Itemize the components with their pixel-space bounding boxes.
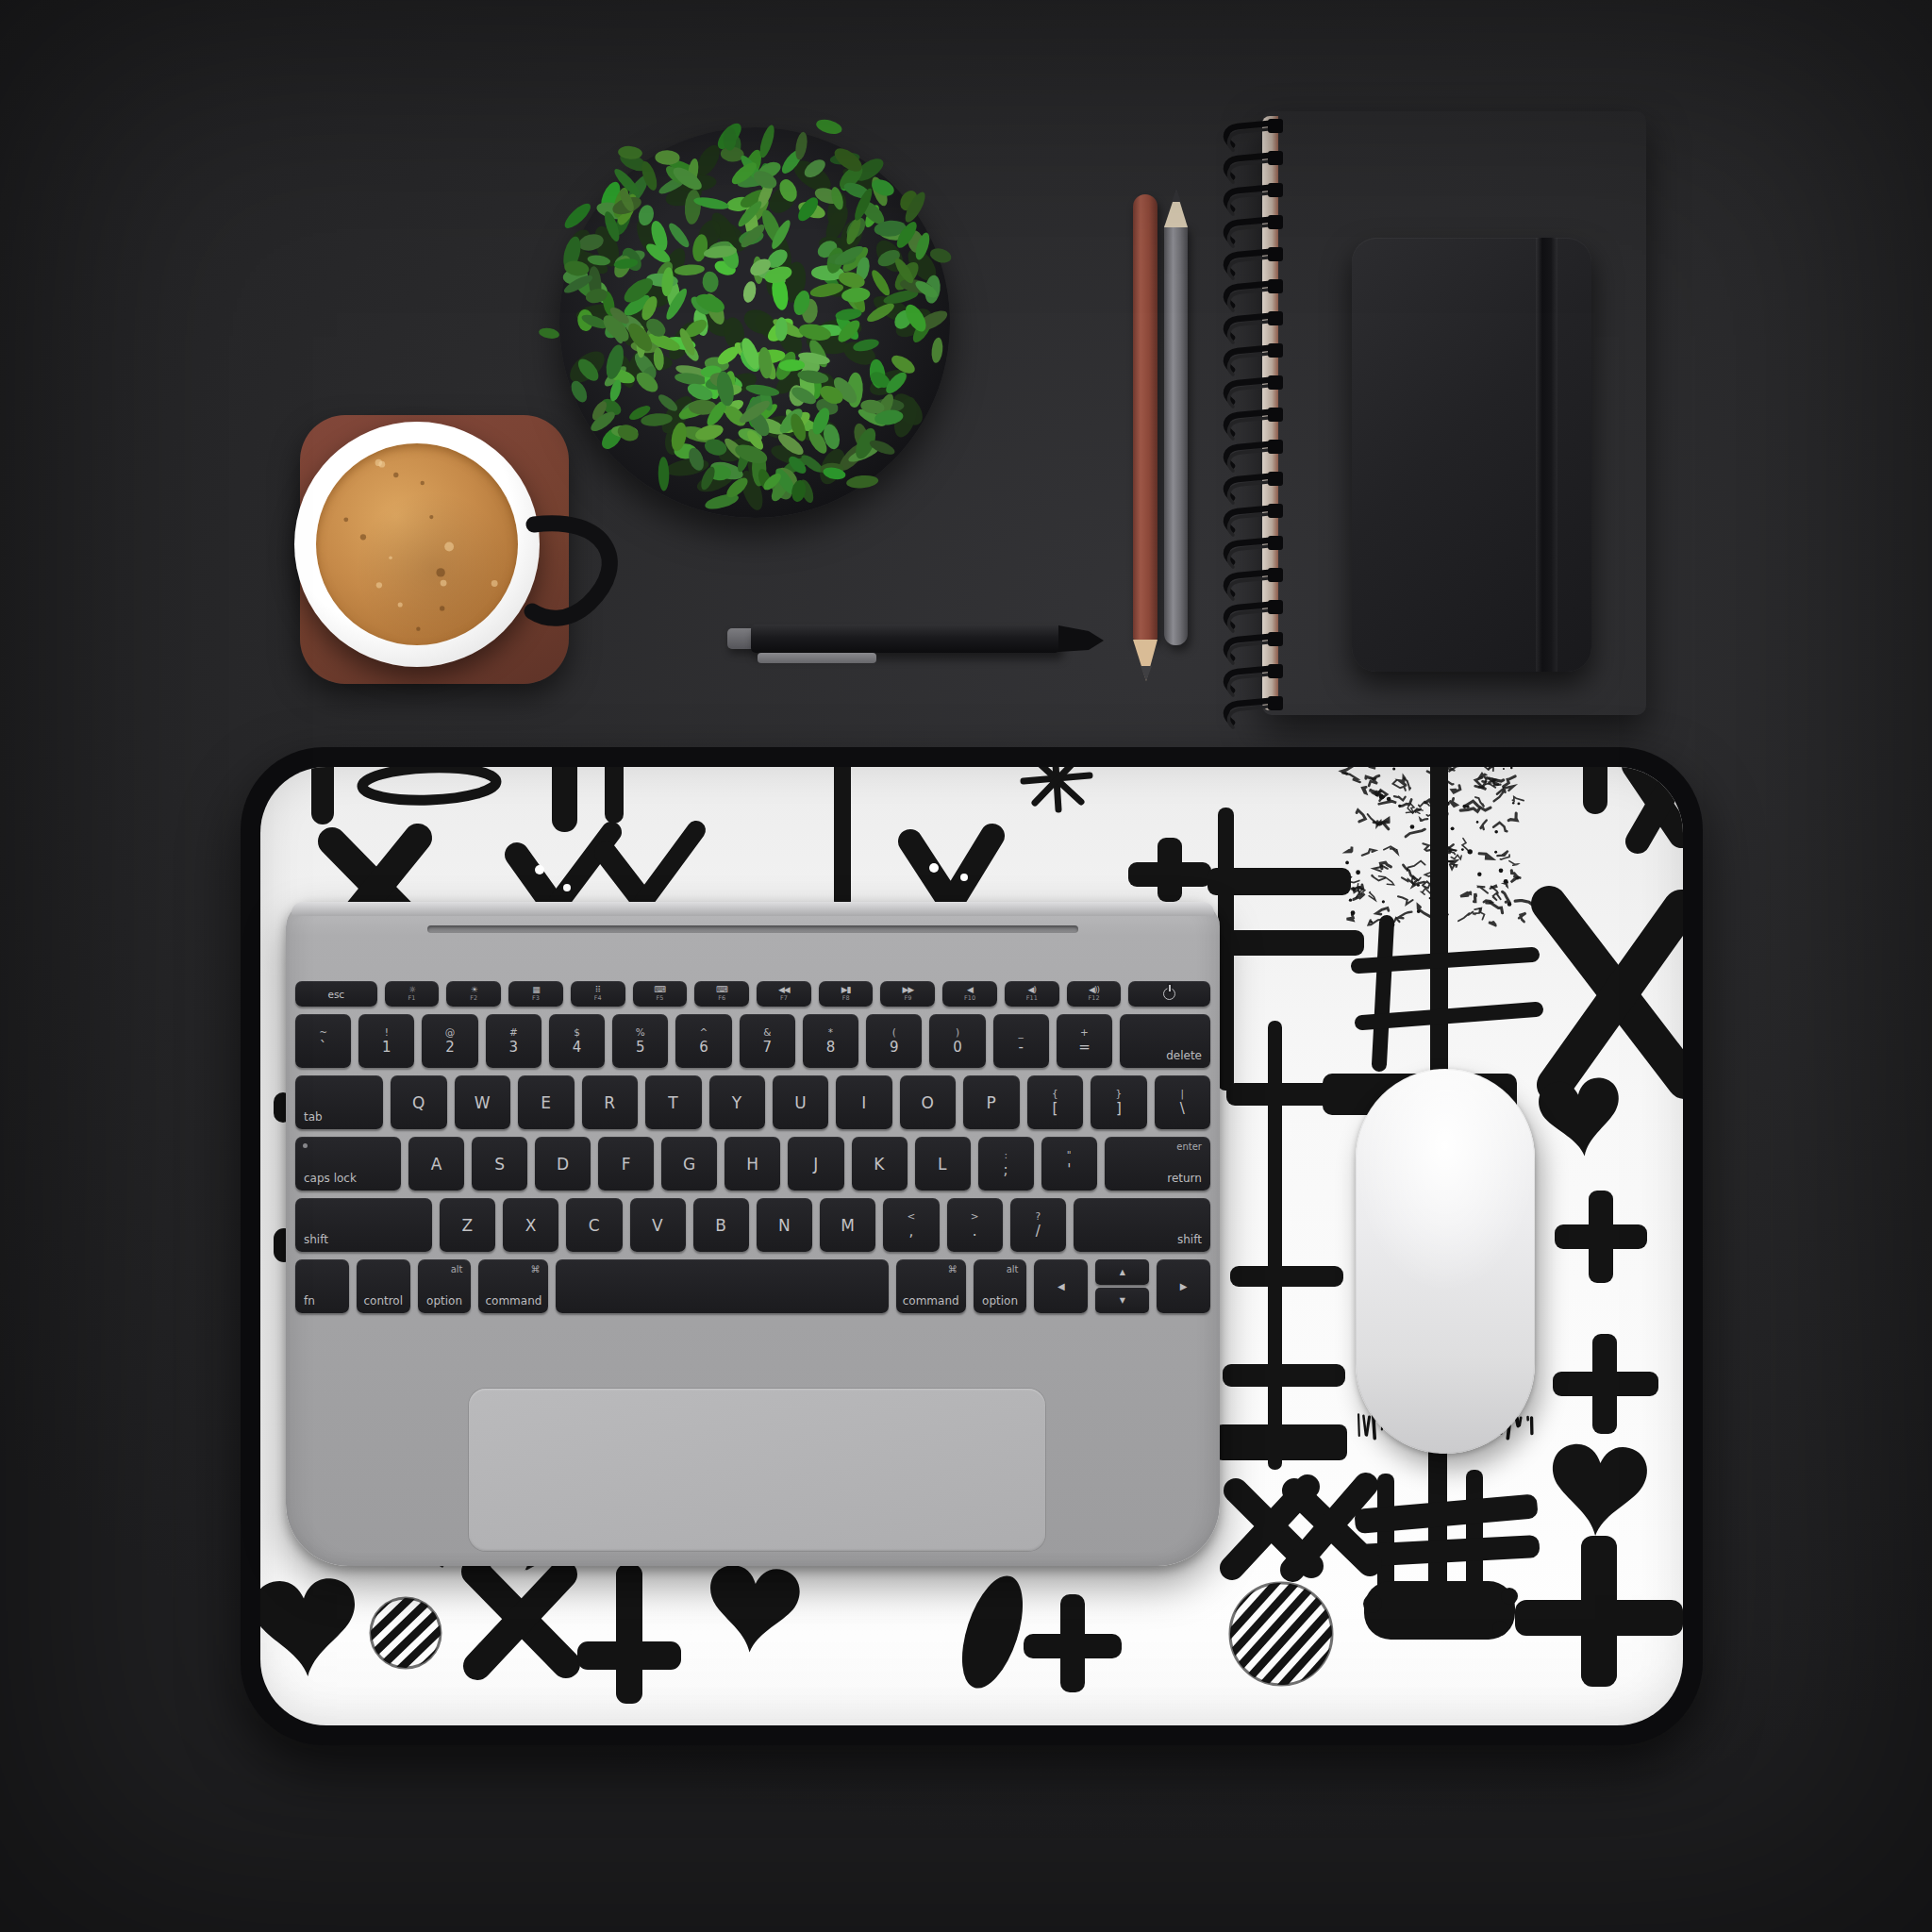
key-up[interactable]: ▲: [1095, 1259, 1149, 1285]
key-esc[interactable]: esc: [295, 981, 377, 1007]
key-F9[interactable]: ▶▶F9: [880, 981, 935, 1007]
trackpad[interactable]: [469, 1389, 1045, 1551]
key-s[interactable]: #3: [486, 1014, 541, 1068]
key-F5[interactable]: ⌨F5: [633, 981, 688, 1007]
key-s[interactable]: @2: [422, 1014, 477, 1068]
fn-key-icon: ◀)): [1089, 986, 1099, 994]
key-s[interactable]: *8: [803, 1014, 858, 1068]
key-s[interactable]: "': [1041, 1137, 1097, 1191]
power-icon: [1163, 988, 1175, 1000]
gray-pencil-lead: [1172, 189, 1181, 202]
key-delete[interactable]: delete: [1120, 1014, 1210, 1068]
key-N[interactable]: N: [757, 1198, 812, 1252]
notebook-elastic-band: [1536, 238, 1557, 672]
key-s[interactable]: <,: [883, 1198, 939, 1252]
gray-pencil: [1164, 225, 1188, 645]
key-shift[interactable]: shift: [1074, 1198, 1210, 1252]
key-V[interactable]: V: [630, 1198, 686, 1252]
key-F12[interactable]: ◀))F12: [1067, 981, 1122, 1007]
key-F1[interactable]: ☼F1: [385, 981, 440, 1007]
key-F3[interactable]: ▦F3: [508, 981, 563, 1007]
fn-key-icon: ▶▮: [841, 986, 851, 994]
key-s[interactable]: )0: [929, 1014, 985, 1068]
key-Y[interactable]: Y: [709, 1075, 765, 1129]
laptop-hinge-vent: [427, 925, 1078, 933]
pen-clip: [758, 653, 876, 663]
key-R[interactable]: R: [582, 1075, 638, 1129]
keyboard: esc☼F1☀F2▦F3⠿F4⌨F5⌨F6◀◀F7▶▮F8▶▶F9◀F10◀)F…: [295, 981, 1210, 1313]
key-s[interactable]: |\: [1155, 1075, 1210, 1129]
key-M[interactable]: M: [820, 1198, 875, 1252]
key-s[interactable]: !1: [358, 1014, 414, 1068]
key-s[interactable]: ~`: [295, 1014, 351, 1068]
key-shift[interactable]: shift: [295, 1198, 432, 1252]
fn-key-icon: ▶▶: [902, 986, 913, 994]
gray-pencil-tip: [1164, 191, 1188, 227]
key-F7[interactable]: ◀◀F7: [757, 981, 811, 1007]
brown-pencil-tip: [1133, 640, 1158, 681]
caps-lock-indicator: [303, 1143, 308, 1148]
fn-key-icon: ☀: [471, 986, 477, 994]
key-power[interactable]: [1128, 981, 1210, 1007]
key-down[interactable]: ▼: [1095, 1288, 1149, 1313]
key-U[interactable]: U: [773, 1075, 828, 1129]
key-F[interactable]: F: [598, 1137, 654, 1191]
fn-key-icon: ⌨: [716, 986, 727, 994]
fn-key-icon: ⠿: [595, 986, 601, 994]
key-K[interactable]: K: [852, 1137, 908, 1191]
key-J[interactable]: J: [788, 1137, 843, 1191]
coffee-surface: [316, 443, 518, 645]
key-s[interactable]: {[: [1027, 1075, 1083, 1129]
key-F6[interactable]: ⌨F6: [694, 981, 749, 1007]
key-caps lock[interactable]: caps lock: [295, 1137, 401, 1191]
key-fn[interactable]: fn: [295, 1259, 349, 1313]
brown-pencil-lead: [1141, 666, 1152, 681]
key-F4[interactable]: ⠿F4: [571, 981, 625, 1007]
pen-tip: [1058, 625, 1104, 652]
key-E[interactable]: E: [518, 1075, 574, 1129]
key-S[interactable]: S: [472, 1137, 527, 1191]
key-O[interactable]: O: [900, 1075, 956, 1129]
key-s[interactable]: $4: [549, 1014, 605, 1068]
key-s[interactable]: ?/: [1010, 1198, 1066, 1252]
coffee-cup: [294, 422, 540, 667]
key-H[interactable]: H: [724, 1137, 780, 1191]
key-s[interactable]: :;: [978, 1137, 1034, 1191]
brown-pencil: [1133, 194, 1158, 640]
key-W[interactable]: W: [455, 1075, 510, 1129]
key-F2[interactable]: ☀F2: [446, 981, 501, 1007]
key-option[interactable]: altoption: [974, 1259, 1027, 1313]
key-▶[interactable]: ▶: [1157, 1259, 1210, 1313]
key-space[interactable]: [556, 1259, 888, 1313]
key-X[interactable]: X: [503, 1198, 558, 1252]
key-L[interactable]: L: [915, 1137, 971, 1191]
black-notebook: [1352, 238, 1591, 672]
desk-scene: esc☼F1☀F2▦F3⠿F4⌨F5⌨F6◀◀F7▶▮F8▶▶F9◀F10◀)F…: [0, 0, 1932, 1932]
key-command[interactable]: ⌘command: [478, 1259, 548, 1313]
key-F11[interactable]: ◀)F11: [1005, 981, 1059, 1007]
fn-key-icon: ◀: [967, 986, 973, 994]
laptop-lid-edge: [291, 902, 1214, 916]
key-A[interactable]: A: [408, 1137, 464, 1191]
key-Z[interactable]: Z: [440, 1198, 495, 1252]
key-G[interactable]: G: [661, 1137, 717, 1191]
key-I[interactable]: I: [836, 1075, 891, 1129]
key-s[interactable]: }]: [1091, 1075, 1146, 1129]
key-command[interactable]: ⌘command: [896, 1259, 966, 1313]
key-updown[interactable]: ▲ ▼: [1095, 1259, 1149, 1313]
fn-key-icon: ◀): [1028, 986, 1036, 994]
key-s[interactable]: _-: [993, 1014, 1049, 1068]
laptop: esc☼F1☀F2▦F3⠿F4⌨F5⌨F6◀◀F7▶▮F8▶▶F9◀F10◀)F…: [286, 902, 1220, 1566]
key-s[interactable]: >.: [947, 1198, 1003, 1252]
key-option[interactable]: altoption: [418, 1259, 472, 1313]
wireless-mouse[interactable]: [1356, 1069, 1535, 1454]
plant-pot: [559, 127, 950, 518]
key-D[interactable]: D: [535, 1137, 591, 1191]
key-return[interactable]: enterreturn: [1105, 1137, 1210, 1191]
key-F10[interactable]: ◀F10: [942, 981, 997, 1007]
key-s[interactable]: ^6: [675, 1014, 731, 1068]
key-Q[interactable]: Q: [391, 1075, 446, 1129]
key-T[interactable]: T: [645, 1075, 701, 1129]
key-control[interactable]: control: [357, 1259, 410, 1313]
key-P[interactable]: P: [963, 1075, 1019, 1129]
key-B[interactable]: B: [693, 1198, 749, 1252]
fn-key-icon: ☼: [408, 986, 415, 994]
key-C[interactable]: C: [566, 1198, 622, 1252]
pen: [751, 625, 1060, 653]
key-s[interactable]: (9: [866, 1014, 922, 1068]
key-s[interactable]: +=: [1057, 1014, 1112, 1068]
fn-key-icon: ◀◀: [778, 986, 790, 994]
fn-key-icon: ⌨: [654, 986, 665, 994]
key-F8[interactable]: ▶▮F8: [819, 981, 874, 1007]
key-s[interactable]: &7: [740, 1014, 795, 1068]
key-s[interactable]: %5: [612, 1014, 668, 1068]
key-◀[interactable]: ◀: [1034, 1259, 1088, 1313]
fn-key-icon: ▦: [532, 986, 540, 994]
key-tab[interactable]: tab: [295, 1075, 383, 1129]
